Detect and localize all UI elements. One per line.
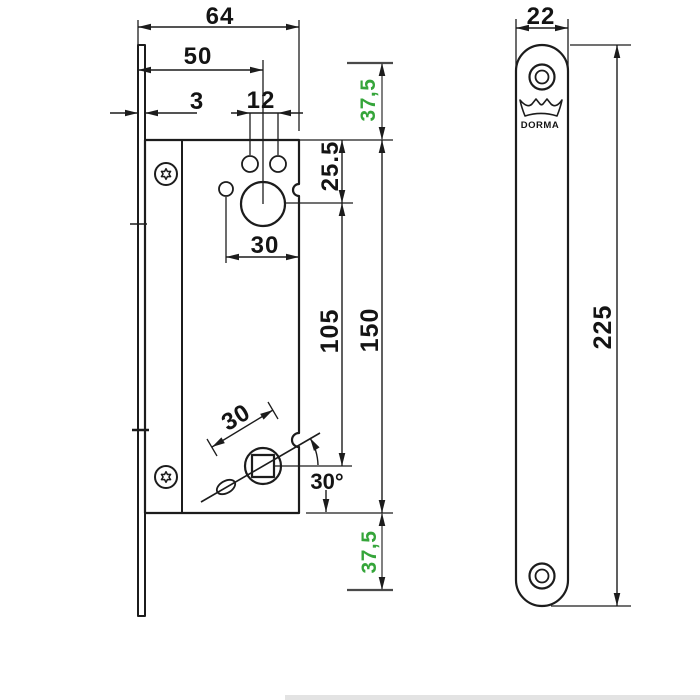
drawing-canvas: 64 50 3 12 25.5 30 105 150 30 30° 37,5 3…: [0, 0, 700, 700]
dim-lever-tick-1: [207, 439, 217, 456]
screw-hole-2: [270, 156, 286, 172]
faceplate-screw-hole-top-inner: [536, 71, 549, 84]
dim-backset-label: 50: [184, 43, 213, 70]
dim-faceplate-thickness-label: 3: [190, 88, 204, 115]
torx-screw-bottom: [155, 466, 177, 488]
dorma-logo-text: DORMA: [521, 120, 559, 131]
angle-arc: [310, 438, 318, 465]
dim-total-depth-label: 64: [206, 3, 235, 30]
dim-follower-angle-label: 30°: [310, 469, 343, 494]
faceplate-screw-hole-bottom-inner: [536, 570, 549, 583]
lock-technical-drawing: 64 50 3 12 25.5 30 105 150 30 30° 37,5 3…: [0, 0, 700, 700]
dim-centre-distance-label: 105: [316, 309, 344, 354]
scan-artifact-bar: [285, 695, 700, 700]
dim-margin-bottom-label: 37,5: [358, 531, 381, 574]
dorma-crown-icon: [520, 99, 562, 116]
dim-faceplate-width-label: 22: [527, 3, 556, 30]
dim-screw-spacing-label: 12: [247, 87, 276, 114]
dim-pocket-width-label: 30: [251, 232, 280, 259]
torx-screw-top: [155, 163, 177, 185]
dim-cylinder-offset-label: 25.5: [317, 141, 344, 192]
screw-hole-1: [242, 156, 258, 172]
lock-case-outline: [145, 140, 299, 513]
faceplate-screw-hole-bottom-outer: [530, 564, 555, 589]
dim-lever-length-label: 30: [217, 399, 256, 437]
dim-lever-tick-2: [268, 402, 278, 419]
dim-case-height-label: 150: [356, 308, 384, 353]
faceplate-screw-hole-top-outer: [530, 65, 555, 90]
pin-hole-left: [219, 182, 233, 196]
dim-faceplate-length-label: 225: [589, 305, 617, 350]
dim-margin-top-label: 37,5: [357, 79, 380, 122]
